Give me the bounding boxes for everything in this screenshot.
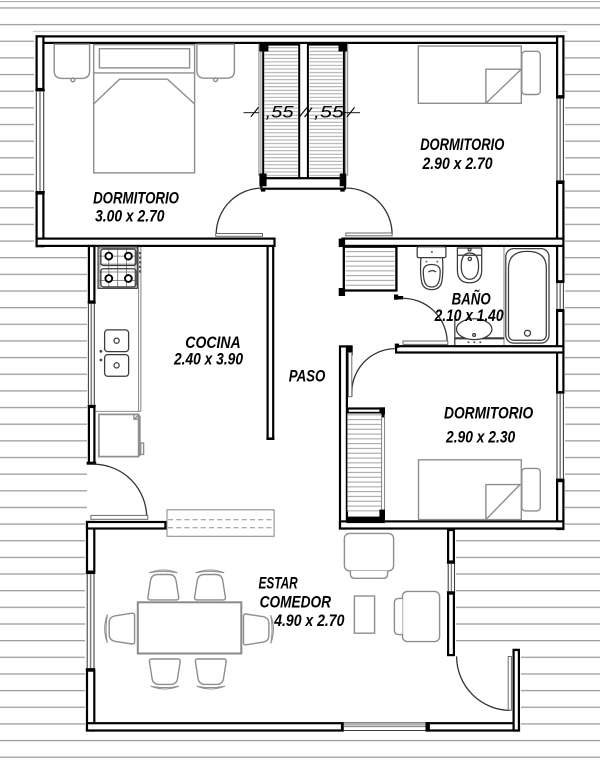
svg-text:DORMITORIO: DORMITORIO <box>420 135 504 154</box>
svg-text:ESTAR: ESTAR <box>259 574 299 593</box>
svg-text:3.00 x 2.70: 3.00 x 2.70 <box>95 207 165 226</box>
svg-text:2.90 x 2.30: 2.90 x 2.30 <box>445 427 515 446</box>
svg-text:DORMITORIO: DORMITORIO <box>93 189 179 208</box>
svg-text:DORMITORIO: DORMITORIO <box>444 403 533 422</box>
svg-text:2.90 x 2.70: 2.90 x 2.70 <box>422 154 493 173</box>
svg-text:PASO: PASO <box>289 367 326 386</box>
svg-text:,55: ,55 <box>314 103 344 122</box>
svg-text:,55: ,55 <box>266 103 295 122</box>
svg-text:COMEDOR: COMEDOR <box>260 593 332 612</box>
svg-text:2.40 x 3.90: 2.40 x 3.90 <box>173 350 243 369</box>
svg-text:4.90 x 2.70: 4.90 x 2.70 <box>273 611 344 630</box>
svg-text:2.10 x 1.40: 2.10 x 1.40 <box>434 306 504 325</box>
